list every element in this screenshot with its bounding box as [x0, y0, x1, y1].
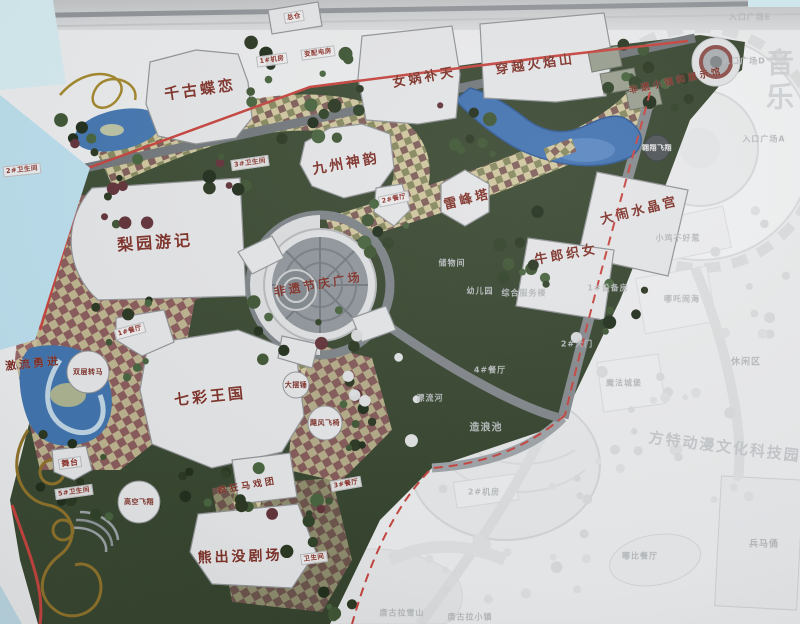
entrance-rotunda [692, 38, 740, 86]
wall-strip [0, 0, 800, 30]
park-map-photo: 千古蝶恋女娲补天穿越火焰山九州神韵梨园游记雷峰塔大闹水晶宫牛郎织女非遗节庆广场七… [0, 0, 800, 624]
site-plan-drawing [0, 0, 800, 624]
ghost-music-plaza-text: 音乐 [758, 48, 798, 116]
